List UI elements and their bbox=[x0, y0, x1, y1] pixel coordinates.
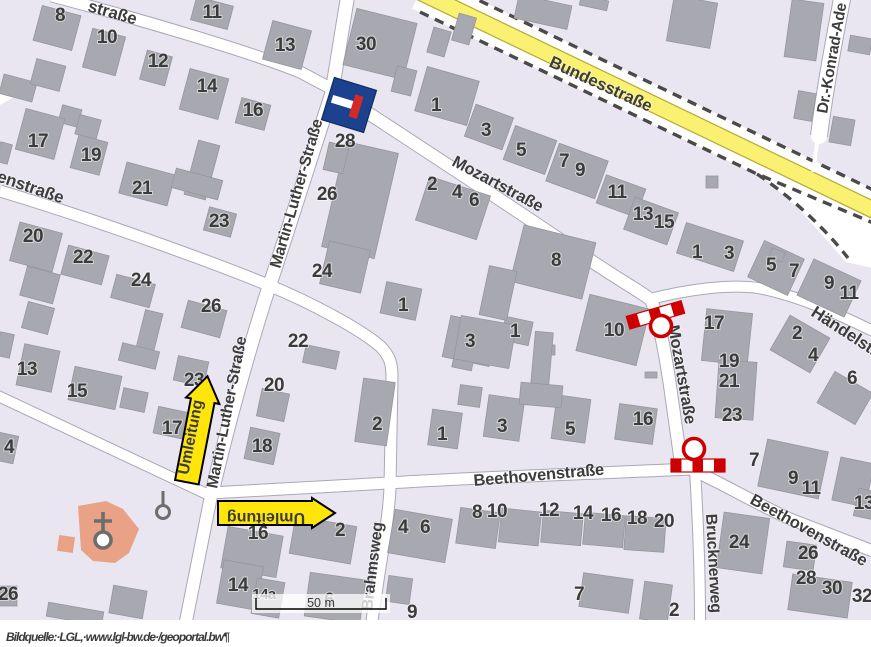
svg-text:11: 11 bbox=[839, 283, 859, 304]
svg-text:13: 13 bbox=[854, 493, 871, 514]
svg-text:21: 21 bbox=[719, 371, 740, 392]
svg-text:1: 1 bbox=[431, 95, 442, 116]
svg-text:1: 1 bbox=[398, 295, 409, 316]
svg-text:8: 8 bbox=[551, 250, 561, 271]
svg-text:26: 26 bbox=[201, 296, 221, 317]
svg-text:2: 2 bbox=[335, 520, 345, 541]
svg-text:7: 7 bbox=[749, 450, 759, 471]
svg-text:4: 4 bbox=[4, 437, 15, 458]
svg-text:10: 10 bbox=[604, 320, 624, 341]
svg-text:8: 8 bbox=[55, 5, 65, 26]
svg-text:13: 13 bbox=[17, 359, 37, 380]
svg-text:13: 13 bbox=[633, 204, 653, 225]
svg-text:7: 7 bbox=[574, 584, 584, 605]
svg-text:3: 3 bbox=[481, 120, 491, 141]
svg-text:20: 20 bbox=[264, 375, 284, 396]
svg-text:4: 4 bbox=[452, 182, 463, 203]
svg-text:17: 17 bbox=[28, 131, 48, 152]
svg-text:10: 10 bbox=[487, 501, 507, 522]
svg-text:9: 9 bbox=[575, 160, 585, 181]
svg-text:21: 21 bbox=[132, 178, 153, 199]
svg-text:3: 3 bbox=[465, 331, 475, 352]
svg-text:4: 4 bbox=[398, 517, 409, 538]
svg-text:28: 28 bbox=[335, 131, 355, 152]
svg-text:23: 23 bbox=[722, 405, 742, 426]
svg-text:15: 15 bbox=[67, 381, 88, 402]
svg-text:32: 32 bbox=[852, 586, 871, 607]
svg-text:7: 7 bbox=[789, 261, 799, 282]
svg-text:17: 17 bbox=[162, 418, 182, 439]
svg-text:Bildquelle:·LGL,·www.lgl-bw.de: Bildquelle:·LGL,·www.lgl-bw.de·/geoporta… bbox=[6, 630, 230, 644]
svg-text:20: 20 bbox=[654, 511, 674, 532]
svg-text:50 m: 50 m bbox=[307, 596, 335, 610]
svg-text:23: 23 bbox=[209, 211, 229, 232]
svg-text:16: 16 bbox=[633, 409, 653, 430]
svg-text:13: 13 bbox=[275, 35, 295, 56]
svg-text:5: 5 bbox=[766, 255, 777, 276]
svg-text:11: 11 bbox=[607, 182, 627, 203]
svg-text:16: 16 bbox=[601, 505, 621, 526]
svg-text:19: 19 bbox=[719, 351, 739, 372]
svg-text:Umleitung: Umleitung bbox=[227, 509, 305, 526]
svg-text:2: 2 bbox=[427, 174, 437, 195]
svg-text:1: 1 bbox=[510, 321, 521, 342]
svg-text:4: 4 bbox=[808, 345, 819, 366]
svg-text:18: 18 bbox=[252, 436, 272, 457]
svg-text:3: 3 bbox=[724, 243, 734, 264]
svg-text:22: 22 bbox=[73, 247, 93, 268]
svg-text:1: 1 bbox=[692, 242, 703, 263]
svg-text:28: 28 bbox=[796, 568, 816, 589]
svg-text:2: 2 bbox=[669, 600, 679, 621]
svg-text:24: 24 bbox=[312, 261, 333, 282]
svg-text:11: 11 bbox=[202, 2, 222, 23]
svg-text:8: 8 bbox=[472, 502, 482, 523]
svg-text:5: 5 bbox=[516, 140, 527, 161]
svg-text:20: 20 bbox=[23, 226, 43, 247]
svg-text:9: 9 bbox=[788, 468, 798, 489]
svg-text:26: 26 bbox=[798, 543, 818, 564]
svg-text:18: 18 bbox=[627, 508, 647, 529]
svg-text:15: 15 bbox=[654, 212, 675, 233]
svg-text:14: 14 bbox=[197, 76, 218, 97]
svg-text:30: 30 bbox=[822, 578, 842, 599]
svg-text:6: 6 bbox=[420, 517, 430, 538]
svg-text:12: 12 bbox=[148, 51, 168, 72]
svg-text:7: 7 bbox=[559, 151, 569, 172]
svg-text:26: 26 bbox=[317, 184, 337, 205]
svg-text:30: 30 bbox=[356, 34, 376, 55]
svg-text:1: 1 bbox=[437, 424, 448, 445]
svg-text:24: 24 bbox=[131, 270, 152, 291]
svg-text:11: 11 bbox=[801, 478, 821, 499]
svg-text:24: 24 bbox=[729, 532, 750, 553]
svg-text:6: 6 bbox=[469, 190, 479, 211]
svg-text:2: 2 bbox=[372, 414, 382, 435]
svg-text:22: 22 bbox=[288, 331, 308, 352]
svg-text:19: 19 bbox=[81, 145, 101, 166]
svg-text:5: 5 bbox=[565, 419, 576, 440]
svg-text:12: 12 bbox=[539, 500, 559, 521]
svg-text:14: 14 bbox=[573, 503, 594, 524]
svg-text:17: 17 bbox=[704, 313, 724, 334]
svg-text:9: 9 bbox=[407, 602, 417, 623]
svg-text:2: 2 bbox=[792, 323, 802, 344]
svg-text:14: 14 bbox=[228, 575, 249, 596]
svg-text:10: 10 bbox=[97, 27, 117, 48]
svg-text:6: 6 bbox=[847, 368, 857, 389]
svg-text:3: 3 bbox=[497, 416, 507, 437]
svg-text:9: 9 bbox=[824, 273, 834, 294]
svg-text:16: 16 bbox=[243, 100, 263, 121]
svg-text:26: 26 bbox=[0, 584, 18, 605]
